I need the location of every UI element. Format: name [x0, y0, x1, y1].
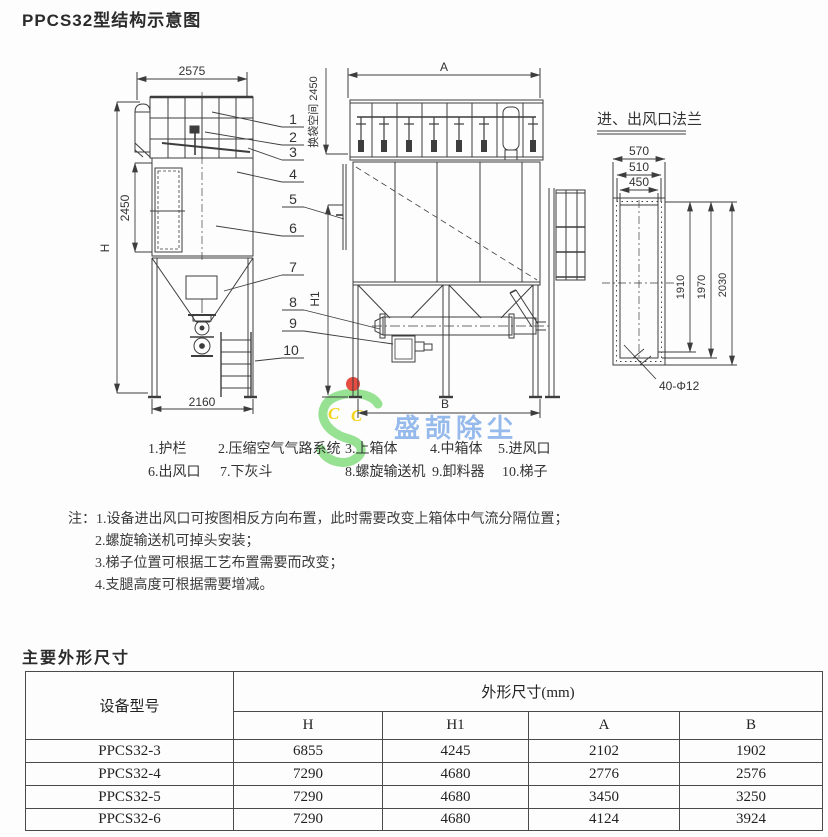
callout-4: 4	[289, 166, 297, 182]
front-view-drawing	[322, 68, 585, 418]
dim-2030-label: 2030	[717, 273, 729, 297]
legend-row-2: 6.出风口 7.下灰斗 8.螺旋输送机 9.卸料器 10.梯子	[0, 461, 828, 479]
flange-view-title: 进、出风口法兰	[597, 111, 702, 128]
table-cell-h: 7290	[234, 809, 383, 831]
table-cell-a: 2102	[529, 740, 680, 763]
note-line-4: 4.支腿高度可根据需要增减。	[68, 575, 569, 597]
table-cell-h1: 4680	[383, 809, 529, 831]
note-item-3: 3.梯子位置可根据工艺布置需要而改变；	[95, 556, 344, 571]
table-header-row-1: 设备型号 外形尺寸(mm)	[26, 672, 823, 712]
table-cell-b: 1902	[680, 740, 823, 763]
dim-h-label: H	[98, 244, 112, 253]
flange-detail-drawing	[597, 131, 737, 379]
callout-10: 10	[283, 342, 299, 358]
table-cell-h1: 4680	[383, 786, 529, 809]
left-view-drawing	[117, 72, 257, 414]
legend-item-5: 5.进风口	[498, 438, 551, 458]
table-cell-h1: 4680	[383, 763, 529, 786]
table-cell-a: 3450	[529, 786, 680, 809]
dim-b-label: B	[441, 397, 449, 411]
table-cell-h: 7290	[234, 786, 383, 809]
note-line-3: 3.梯子位置可根据工艺布置需要而改变；	[68, 553, 569, 575]
document-page: { "page": { "title": "PPCS32型结构示意图", "se…	[0, 0, 828, 837]
table-header-b: B	[680, 712, 823, 740]
dim-h1-label: H1	[308, 291, 322, 307]
note-line-2: 2.螺旋输送机可掉头安装；	[68, 531, 569, 553]
legend-item-1: 1.护栏	[148, 438, 187, 458]
dim-1970-label: 1970	[696, 275, 708, 299]
table-cell-h: 7290	[234, 763, 383, 786]
callout-3: 3	[289, 144, 297, 160]
note-prefix: 注：	[68, 512, 96, 527]
callout-8: 8	[289, 294, 297, 310]
legend-item-6: 6.出风口	[148, 461, 201, 481]
table-cell-model: PPCS32-3	[26, 740, 234, 763]
legend-row-1: 1.护栏 2.压缩空气气路系统 3.上箱体 4.中箱体 5.进风口	[0, 438, 828, 456]
legend-item-8: 8.螺旋输送机	[345, 461, 426, 481]
callout-2: 2	[289, 129, 297, 145]
dim-a-label: A	[440, 60, 448, 74]
note-item-4: 4.支腿高度可根据需要增减。	[95, 578, 274, 593]
table-cell-b: 3924	[680, 809, 823, 831]
dim-1910-label: 1910	[675, 275, 687, 299]
callout-numbers: 1 2 3 4 5 6 7 8 9 10	[283, 111, 299, 358]
table-cell-a: 2776	[529, 763, 680, 786]
table-cell-model: PPCS32-5	[26, 786, 234, 809]
note-item-1: 1.设备进出风口可按图相反方向布置，此时需要改变上箱体中气流分隔位置；	[96, 512, 569, 527]
table-cell-a: 4124	[529, 809, 680, 831]
table-cell-model: PPCS32-4	[26, 763, 234, 786]
table-header-h1: H1	[383, 712, 529, 740]
table-cell-b: 3250	[680, 786, 823, 809]
dim-2450-label: 2450	[118, 194, 132, 221]
table-cell-h1: 4245	[383, 740, 529, 763]
dim-2160-label: 2160	[189, 395, 216, 409]
callout-5: 5	[289, 191, 297, 207]
section-title-dimensions: 主要外形尺寸	[22, 644, 130, 668]
legend-item-9: 9.卸料器	[432, 461, 485, 481]
legend-item-4: 4.中箱体	[430, 438, 483, 458]
dim-510-label: 510	[629, 160, 649, 174]
dim-570-label: 570	[629, 144, 649, 158]
table-header-model: 设备型号	[26, 672, 234, 740]
watermark-letter-c1: C	[328, 404, 340, 423]
table-header-dims-group: 外形尺寸(mm)	[234, 672, 823, 712]
dim-450-label: 450	[629, 175, 649, 189]
watermark-letter-c2: C	[351, 406, 363, 425]
table-row: PPCS32-5 7290 4680 3450 3250	[26, 786, 823, 809]
table-row: PPCS32-6 7290 4680 4124 3924	[26, 809, 823, 831]
callout-7: 7	[289, 259, 297, 275]
legend-item-3: 3.上箱体	[345, 438, 398, 458]
legend-item-2: 2.压缩空气气路系统	[218, 438, 341, 458]
table-cell-model: PPCS32-6	[26, 809, 234, 831]
dim-bag-space-label: 换袋空间 2450	[306, 76, 320, 148]
table-row: PPCS32-4 7290 4680 2776 2576	[26, 763, 823, 786]
table-header-h: H	[234, 712, 383, 740]
table-row: PPCS32-3 6855 4245 2102 1902	[26, 740, 823, 763]
legend-item-10: 10.梯子	[502, 461, 548, 481]
table-header-a: A	[529, 712, 680, 740]
bolt-note-label: 40-Φ12	[659, 379, 700, 393]
legend-item-7: 7.下灰斗	[220, 461, 273, 481]
callout-9: 9	[289, 315, 297, 331]
technical-drawing: C C 盛颉除尘	[0, 0, 828, 500]
callout-6: 6	[289, 220, 297, 236]
notes-block: 注：1.设备进出风口可按图相反方向布置，此时需要改变上箱体中气流分隔位置； 2.…	[68, 509, 569, 597]
table-cell-b: 2576	[680, 763, 823, 786]
dimensions-table: 设备型号 外形尺寸(mm) H H1 A B PPCS32-3 6855 424…	[25, 671, 823, 831]
note-item-2: 2.螺旋输送机可掉头安装；	[95, 534, 260, 549]
callout-1: 1	[289, 111, 297, 127]
note-line-1: 注：1.设备进出风口可按图相反方向布置，此时需要改变上箱体中气流分隔位置；	[68, 509, 569, 531]
table-cell-h: 6855	[234, 740, 383, 763]
dim-2575-label: 2575	[179, 64, 206, 78]
